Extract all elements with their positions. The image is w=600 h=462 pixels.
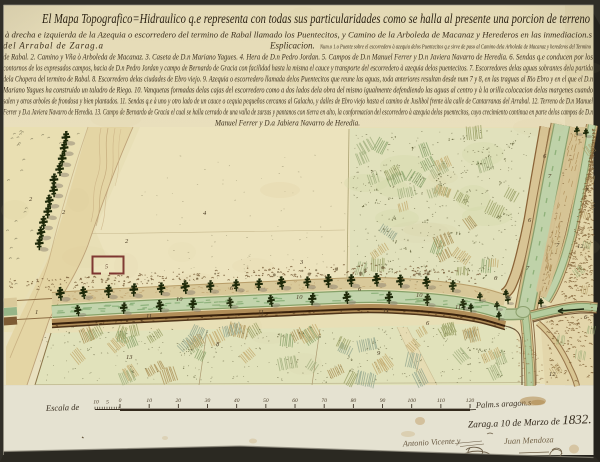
- svg-text:Escala de: Escala de: [45, 402, 80, 413]
- svg-text:10: 10: [93, 400, 99, 406]
- svg-text:30: 30: [204, 398, 211, 404]
- svg-text:110: 110: [437, 398, 445, 404]
- svg-text:10: 10: [146, 398, 152, 404]
- svg-text:0: 0: [119, 398, 122, 404]
- svg-text:11: 11: [146, 313, 152, 320]
- svg-text:11: 11: [258, 309, 264, 316]
- svg-text:Mariano Yagues ha construido u: Mariano Yagues ha construido un taladro …: [2, 86, 593, 95]
- svg-text:de Rabal. 2. Camino y Vña ò Ar: de Rabal. 2. Camino y Vña ò Arboleda de …: [3, 53, 593, 62]
- svg-text:Num.o 1.o Puente sobre el esco: Num.o 1.o Puente sobre el escorredero à …: [319, 44, 591, 51]
- svg-text:60: 60: [292, 398, 298, 404]
- svg-text:11: 11: [383, 307, 389, 314]
- svg-text:Esplicacion.: Esplicacion.: [269, 41, 315, 51]
- svg-text:70: 70: [321, 398, 327, 404]
- svg-text:50: 50: [263, 398, 269, 404]
- svg-text:12: 12: [549, 371, 556, 378]
- svg-text:20: 20: [176, 398, 182, 404]
- svg-text:90: 90: [380, 398, 386, 404]
- svg-text:40: 40: [234, 398, 240, 404]
- svg-text:1: 1: [35, 309, 38, 316]
- svg-text:Ferrer y D.a Javiera Navarro d: Ferrer y D.a Javiera Navarro de Heredia.…: [2, 108, 593, 117]
- svg-text:120: 120: [466, 398, 475, 404]
- svg-text:Juan Mendoza: Juan Mendoza: [504, 434, 554, 446]
- svg-text:Manuel Ferrer y D.a Jabiera Na: Manuel Ferrer y D.a Jabiera Navarro de H…: [214, 119, 360, 128]
- svg-text:80: 80: [351, 398, 357, 404]
- svg-text:10: 10: [296, 294, 303, 301]
- svg-text:5: 5: [105, 265, 108, 271]
- svg-text:salen y otros arboles de frond: salen y otros arboles de frondosa y bien…: [3, 97, 593, 106]
- svg-text:13: 13: [126, 354, 133, 361]
- svg-text:100: 100: [408, 398, 417, 404]
- svg-text:5: 5: [106, 400, 109, 406]
- svg-text:10: 10: [176, 296, 183, 303]
